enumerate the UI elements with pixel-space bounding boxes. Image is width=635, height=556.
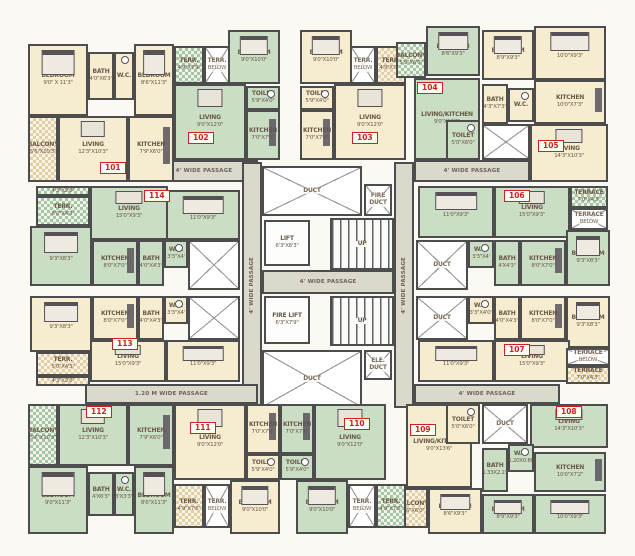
unit-109-toilet-label: TOILET: [452, 417, 474, 424]
unit-101-bedroom1-dims: 9'0" X 11'3": [43, 80, 72, 86]
unit-111-toilet-dims: 5'9"X4'0": [251, 467, 274, 473]
unit-106-living-label: LIVING: [521, 205, 543, 212]
unit-114-terrace-dims: 8'0"X4'3": [51, 211, 74, 217]
unit-110-terrace-label: TERR.: [382, 499, 401, 506]
unit-106-bedroom-a-label: BEDROOM: [439, 205, 472, 212]
unit-114-bedroom-a-dims: 11'0"X9'3": [190, 215, 216, 221]
unit-112-bedroom2-label: BEDROOM: [137, 493, 170, 500]
unit-101-bath-dims: 4'0"X6'3": [89, 76, 112, 82]
unit-109-living-kitchen-dims: 9'0"X13'6": [426, 446, 452, 452]
unit-110-kitchen: KITCHEN7'0"X7'9": [280, 404, 314, 454]
unit-107-terrace: TERRACE7'0"X4'3": [566, 366, 610, 384]
unit-106-duct-label: DUCT: [432, 262, 452, 269]
unit-103-bedroom-label: BEDROOM: [309, 50, 342, 57]
unit-107-duct: DUCT: [416, 296, 468, 340]
passage-mid-label: 4' WIDE PASSAGE: [300, 279, 357, 285]
unit-112-bath: BATH4'X6'3": [88, 472, 114, 516]
unit-103-living: LIVING9'0"X12'0": [334, 84, 406, 160]
unit-111-badge: 111: [190, 422, 216, 434]
unit-110-toilet-label: TOILET: [286, 460, 308, 467]
fire-duct: FIRE DUCT: [364, 184, 392, 216]
unit-114-wc-dims: 3'3"X4': [167, 254, 185, 260]
passage-top-left-label: 4' WIDE PASSAGE: [176, 168, 233, 174]
unit-113-wc: W.C.3'3"X4': [164, 296, 188, 324]
unit-111-toilet: TOILET5'9"X4'0": [246, 454, 280, 480]
unit-107-badge: 107: [504, 344, 530, 356]
unit-110-living-label: LIVING: [339, 435, 361, 442]
duct-top-label: DUCT: [302, 188, 322, 195]
unit-102-bedroom-label: BEDROOM: [237, 50, 270, 57]
unit-107-terrace-below-label: TERRACE: [572, 350, 603, 357]
unit-112-wc-label: W.C.: [117, 487, 131, 494]
unit-102-kitchen: KITCHEN7'0"X7'9": [246, 110, 280, 160]
unit-111-living-label: LIVING: [199, 435, 221, 442]
unit-110-toilet-dims: 5'9"X4'0": [285, 467, 308, 473]
unit-107-living-dims: 15'0"X9'3": [519, 361, 545, 367]
unit-114-wc-label: W.C.: [169, 247, 183, 254]
unit-106-kitchen-dims: 8'0"X7'0": [531, 263, 554, 269]
unit-113-terrace-strip-dims: 4'3"X2'6": [51, 378, 74, 384]
unit-111-toilet-label: TOILET: [252, 460, 274, 467]
unit-107-bedroom-a-label: BEDROOM: [439, 354, 472, 361]
unit-106-badge: 106: [504, 190, 530, 202]
unit-108-kitchen-dims: 10'0"X7'2": [557, 472, 583, 478]
unit-114-kitchen-dims: 8'0"X7'0": [103, 263, 126, 269]
unit-101-badge: 101: [100, 162, 126, 174]
unit-101-bedroom1-label: BEDROOM: [41, 73, 74, 80]
unit-113-living-label: LIVING: [117, 354, 139, 361]
lift-dims: 6'3"X6'3": [275, 243, 298, 249]
unit-109-bedroom: BEDROOM8'6"X9'3": [428, 488, 482, 534]
fire-duct-label: FIRE DUCT: [366, 193, 390, 207]
unit-102-kitchen-label: KITCHEN: [249, 128, 277, 135]
passage-bottom-right-label: 4' WIDE PASSAGE: [459, 391, 516, 397]
unit-114-terrace-label: TERR.: [54, 204, 73, 211]
unit-108-duct-label: DUCT: [495, 421, 515, 428]
unit-106-kitchen: KITCHEN8'0"X7'0": [520, 240, 566, 286]
duct-top: DUCT: [262, 166, 362, 216]
unit-110-bedroom: BEDROOM9'0"X10'0": [296, 480, 348, 534]
unit-113-badge: 113: [112, 338, 138, 350]
unit-102-bedroom: BEDROOM9'0"X10'0": [228, 30, 280, 84]
unit-112-living-label: LIVING: [82, 428, 104, 435]
unit-102-terrace-below-dims: BELOW: [207, 65, 227, 71]
unit-106-bedroom-b-label: BEDROOM: [571, 251, 604, 258]
unit-114-terrace-strip-dims: 4'3"X2'6": [51, 188, 74, 194]
fire-lift-dims: 6'3"X7'9": [275, 320, 298, 326]
duct-bottom: DUCT: [262, 350, 362, 408]
unit-102-living-label: LIVING: [199, 115, 221, 122]
unit-106-terrace: TERRACE7'0"X4'3": [570, 186, 608, 208]
unit-114-bedroom1: BEDROOM9'3"X8'3": [30, 226, 92, 286]
unit-102-toilet: TOILET5'9"X4'0": [246, 86, 280, 110]
unit-113-terrace-dims: 5'0"X4'3": [51, 364, 74, 370]
unit-108-bedroom1: BEDROOM8'9"X9'3": [482, 494, 534, 534]
unit-112-living-dims: 12'3"X10'3": [78, 435, 108, 441]
unit-112-balcony-label: BALCONY: [28, 428, 59, 435]
unit-102-terrace-label: TERR.: [180, 58, 199, 65]
unit-107-bath: BATH4'0"X4'3": [494, 296, 520, 340]
unit-114-kitchen-label: KITCHEN: [101, 256, 129, 263]
unit-104-bedroom: BEDROOM8'6"X9'3": [426, 26, 480, 76]
unit-114-badge: 114: [144, 190, 170, 202]
unit-105-bedroom2: BEDROOM10'0"X9'3": [534, 26, 606, 80]
unit-103-kitchen: KITCHEN7'0"X7'9": [300, 110, 334, 160]
unit-108-bath-dims: 1.33X2.23: [482, 470, 508, 476]
unit-109-badge: 109: [410, 424, 436, 436]
unit-113-kitchen: KITCHEN8'0"X7'0": [92, 296, 138, 340]
unit-107-bedroom-b-label: BEDROOM: [571, 315, 604, 322]
unit-105-badge: 105: [538, 140, 564, 152]
passage-mid: 4' WIDE PASSAGE: [262, 270, 394, 294]
unit-107-bath-dims: 4'0"X4'3": [495, 318, 518, 324]
unit-107-terrace-below: TERRACEBELOW: [566, 348, 610, 366]
unit-106-bedroom-b: BEDROOM9'3"X8'3": [566, 230, 610, 286]
unit-101-living-label: LIVING: [82, 142, 104, 149]
unit-114-terrace: TERR.8'0"X4'3": [36, 196, 90, 226]
unit-113-bath-label: BATH: [142, 311, 159, 318]
unit-113-wc-dims: 3'3"X4': [167, 310, 185, 316]
unit-101-kitchen: KITCHEN7'9"X6'0": [128, 116, 174, 182]
unit-102-toilet-dims: 5'9"X4'0": [251, 98, 274, 104]
unit-101-balcony: BALCONY5'6"X10'3": [28, 116, 58, 182]
unit-105-bedroom2-dims: 10'0"X9'3": [557, 53, 583, 59]
unit-101-wc: W.C.: [114, 52, 134, 100]
unit-106-bath: BATH4'X4'3": [494, 240, 520, 286]
unit-107-bedroom-b-dims: 9'3"X8'3": [576, 322, 599, 328]
unit-102-toilet-label: TOILET: [252, 91, 274, 98]
unit-110-kitchen-label: KITCHEN: [283, 422, 311, 429]
unit-103-terrace-below-dims: BELOW: [353, 65, 373, 71]
unit-101-kitchen-dims: 7'9"X6'0": [139, 149, 162, 155]
stairs-top-label: UP: [356, 241, 369, 248]
passage-left-vertical: 4' WIDE PASSAGE: [242, 162, 262, 408]
unit-108-bath-label: BATH: [486, 463, 503, 470]
unit-114-duct: [188, 240, 240, 290]
unit-104-balcony: BALCONY5'9"X6'0": [396, 42, 426, 78]
unit-106-wc-dims: 3'3"X4': [472, 254, 490, 260]
unit-107-kitchen-label: KITCHEN: [529, 311, 557, 318]
unit-102-terrace-below: TERR.BELOW: [204, 46, 230, 84]
unit-103-living-label: LIVING: [359, 115, 381, 122]
unit-101-kitchen-label: KITCHEN: [137, 142, 165, 149]
unit-102-kitchen-dims: 7'0"X7'9": [251, 135, 274, 141]
passage-top-right-label: 4' WIDE PASSAGE: [444, 168, 501, 174]
unit-114-bedroom1-label: BEDROOM: [44, 249, 77, 256]
unit-106-wc-label: W.C.: [474, 247, 488, 254]
unit-102-living-dims: 9'0"X12'0": [197, 122, 223, 128]
unit-111-bedroom-dims: 9'0"X10'0": [242, 507, 268, 513]
unit-111-terrace-below-label: TERR.: [207, 499, 228, 506]
unit-103-kitchen-label: KITCHEN: [303, 128, 331, 135]
unit-108-bedroom2: BEDROOM10'0"X9'3": [534, 494, 606, 534]
unit-111-kitchen: KITCHEN7'0"X7'9": [246, 404, 280, 454]
floor-plan: 4' WIDE PASSAGE4' WIDE PASSAGE4' WIDE PA…: [0, 0, 635, 556]
unit-108-bedroom2-label: BEDROOM: [553, 507, 586, 514]
unit-107-wc: W.C.3'3"X4'0": [468, 296, 494, 324]
unit-114-bath: BATH4'0"X4'3": [138, 240, 164, 286]
unit-108-bedroom1-dims: 8'9"X9'3": [496, 514, 519, 520]
unit-111-living-dims: 9'0"X12'0": [197, 442, 223, 448]
unit-108-duct: DUCT: [482, 404, 528, 444]
unit-106-terrace-label: TERRACE: [574, 190, 603, 197]
unit-101-living-dims: 12'3"X10'3": [78, 149, 108, 155]
unit-101-balcony-label: BALCONY: [28, 142, 59, 149]
unit-114-bedroom-a-label: BEDROOM: [186, 208, 219, 215]
unit-107-wc-label: W.C.: [474, 303, 488, 310]
unit-106-bedroom-b-dims: 9'3"X8'3": [576, 258, 599, 264]
unit-106-terrace-below: TERRACEBELOW: [570, 208, 608, 230]
unit-106-terrace-dims: 7'0"X4'3": [577, 197, 600, 203]
unit-111-bedroom: BEDROOM9'0"X10'0": [230, 480, 280, 534]
electrical-duct: ELE. DUCT: [364, 350, 392, 380]
unit-112-bedroom1-label: BEDROOM: [41, 493, 74, 500]
unit-114-wc: W.C.3'3"X4': [164, 240, 188, 268]
unit-114-terrace-strip: 4'3"X2'6": [36, 186, 90, 196]
unit-102-terrace-below-label: TERR.: [207, 58, 228, 65]
unit-105-bedroom1-dims: 8'9"X9'3": [496, 55, 519, 61]
unit-105-duct: [482, 124, 530, 160]
unit-107-bedroom-a: BEDROOM11'0"X9'3": [418, 340, 494, 382]
unit-101-balcony-dims: 5'6"X10'3": [30, 149, 56, 155]
unit-107-bedroom-a-dims: 11'0"X9'3": [443, 361, 469, 367]
unit-105-wc: W.C.: [508, 88, 534, 122]
unit-108-living-label: LIVING: [558, 419, 580, 426]
unit-107-terrace-below-dims: BELOW: [578, 357, 598, 363]
passage-bottom-right: 4' WIDE PASSAGE: [414, 384, 560, 404]
unit-103-kitchen-dims: 7'0"X7'9": [305, 135, 328, 141]
unit-111-living: LIVING9'0"X12'0": [174, 404, 246, 480]
fire-lift: FIRE LIFT6'3"X7'9": [264, 296, 310, 344]
unit-111-bedroom-label: BEDROOM: [238, 500, 271, 507]
unit-101-bath-label: BATH: [92, 69, 109, 76]
unit-112-bath-dims: 4'X6'3": [92, 494, 110, 500]
unit-106-living-dims: 15'0"X9'3": [519, 212, 545, 218]
unit-107-kitchen-dims: 8'0"X7'0": [531, 318, 554, 324]
unit-105-bath-dims: 4'3"X7'3": [483, 104, 506, 110]
unit-113-bath: BATH4'0"X4'3": [138, 296, 164, 340]
unit-105-bedroom1: BEDROOM8'9"X9'3": [482, 30, 534, 80]
unit-108-bedroom1-label: BEDROOM: [491, 507, 524, 514]
unit-112-bedroom1: BEDROOM9'0"X11'3": [28, 466, 88, 534]
unit-113-kitchen-label: KITCHEN: [101, 311, 129, 318]
unit-106-terrace-below-label: TERRACE: [573, 212, 604, 219]
unit-105-bedroom1-label: BEDROOM: [491, 48, 524, 55]
unit-107-kitchen: KITCHEN8'0"X7'0": [520, 296, 566, 340]
unit-109-toilet-dims: 5'0"X6'0": [451, 424, 474, 430]
stairs-bottom: UP: [330, 296, 394, 346]
unit-106-bath-label: BATH: [498, 256, 515, 263]
unit-110-kitchen-dims: 7'0"X7'9": [285, 429, 308, 435]
unit-110-living-dims: 9'0"X12'0": [337, 442, 363, 448]
unit-108-living-dims: 14'3"X10'3": [554, 426, 584, 432]
unit-114-bedroom-a: BEDROOM11'0"X9'3": [166, 190, 240, 240]
unit-103-toilet-label: TOILET: [306, 91, 328, 98]
unit-112-balcony: BALCONY5'6"X10'3": [28, 404, 58, 466]
unit-112-kitchen-label: KITCHEN: [137, 428, 165, 435]
unit-105-living: LIVING14'3"X10'3": [530, 124, 608, 182]
passage-bottom-left-label: 1.20 M WIDE PASSAGE: [135, 391, 208, 397]
unit-109-toilet: TOILET5'0"X6'0": [446, 404, 480, 444]
unit-105-kitchen-label: KITCHEN: [556, 95, 584, 102]
lift-label: LIFT: [280, 236, 293, 243]
unit-107-duct-label: DUCT: [432, 315, 452, 322]
unit-105-bath: BATH4'3"X7'3": [482, 84, 508, 124]
unit-101-bath: BATH4'0"X6'3": [88, 52, 114, 100]
unit-112-bedroom1-dims: 9'0"X11'3": [45, 500, 71, 506]
unit-110-bedroom-dims: 9'0"X10'0": [309, 507, 335, 513]
unit-108-wc: W.C.1.20X0.80: [508, 444, 534, 472]
unit-101-bedroom2-dims: 8'6"X11'3": [141, 80, 167, 86]
unit-114-bath-label: BATH: [142, 256, 159, 263]
unit-113-wc-label: W.C.: [169, 303, 183, 310]
unit-108-bedroom2-dims: 10'0"X9'3": [557, 514, 583, 520]
unit-101-wc-label: W.C.: [117, 73, 131, 80]
unit-101-bedroom2: BEDROOM8'6"X11'3": [134, 44, 174, 116]
unit-101-bedroom2-label: BEDROOM: [137, 73, 170, 80]
unit-114-living-dims: 15'0"X9'3": [116, 213, 142, 219]
unit-106-duct: DUCT: [416, 240, 468, 290]
unit-103-bedroom: BEDROOM9'0"X10'0": [300, 30, 352, 84]
unit-113-duct: [188, 296, 240, 340]
passage-right-vertical: 4' WIDE PASSAGE: [394, 162, 414, 408]
unit-104-balcony-label: BALCONY: [396, 53, 427, 60]
unit-102-living: LIVING9'0"X12'0": [174, 84, 246, 160]
unit-105-living-dims: 14'3"X10'3": [554, 153, 584, 159]
unit-111-terrace-below: TERR.BELOW: [204, 484, 230, 528]
unit-112-badge: 112: [86, 406, 112, 418]
unit-107-bedroom-b: BEDROOM9'3"X8'3": [566, 296, 610, 348]
unit-103-terrace-below-label: TERR.: [353, 58, 374, 65]
unit-113-bedroom-a-dims: 11'0"X9'3": [190, 361, 216, 367]
unit-104-toilet-label: TOILET: [452, 133, 474, 140]
unit-113-bedroom1: BEDROOM9'3"X8'3": [30, 296, 92, 352]
unit-104-balcony-dims: 5'9"X6'0": [399, 60, 422, 66]
unit-110-living: LIVING9'0"X12'0": [314, 404, 386, 480]
passage-bottom-left: 1.20 M WIDE PASSAGE: [85, 384, 258, 404]
unit-112-wc: W.C.3'X3'3": [114, 472, 134, 516]
unit-113-terrace-label: TERR.: [54, 357, 73, 364]
unit-111-terrace-dims: 4'9"X7'6": [177, 506, 200, 512]
unit-111-terrace-label: TERR.: [180, 499, 199, 506]
unit-105-kitchen-dims: 10'0"X7'3": [557, 102, 583, 108]
unit-104-living-kitchen-label: LIVING/KITCHEN: [421, 112, 473, 119]
unit-103-terrace-below: TERR.BELOW: [350, 46, 376, 84]
unit-113-bath-dims: 4'0"X4'3": [139, 318, 162, 324]
unit-112-balcony-dims: 5'6"X10'3": [30, 435, 56, 441]
unit-103-living-dims: 9'0"X12'0": [357, 122, 383, 128]
electrical-duct-label: ELE. DUCT: [366, 358, 390, 372]
unit-111-terrace: TERR.4'9"X7'6": [174, 484, 204, 528]
unit-114-bedroom1-dims: 9'3"X8'3": [49, 256, 72, 262]
unit-106-bedroom-a: BEDROOM11'0"X9'3": [418, 186, 494, 238]
unit-106-kitchen-label: KITCHEN: [529, 256, 557, 263]
unit-113-kitchen-dims: 8'0"X7'0": [103, 318, 126, 324]
unit-107-bath-label: BATH: [498, 311, 515, 318]
unit-104-toilet-dims: 5'0"X6'0": [451, 140, 474, 146]
unit-105-kitchen: KITCHEN10'0"X7'3": [534, 80, 606, 124]
stairs-top: UP: [330, 218, 394, 270]
unit-104-toilet: TOILET5'0"X6'0": [446, 120, 480, 160]
unit-111-terrace-below-dims: BELOW: [207, 506, 227, 512]
unit-104-badge: 104: [417, 82, 443, 94]
passage-top-right: 4' WIDE PASSAGE: [414, 160, 530, 182]
unit-106-bedroom-a-dims: 11'0"X9'3": [443, 212, 469, 218]
unit-112-bedroom2: BEDROOM8'6"X11'3": [134, 466, 174, 534]
unit-101-bedroom1: BEDROOM9'0" X 11'3": [28, 44, 88, 116]
unit-112-wc-dims: 3'X3'3": [115, 494, 133, 500]
unit-110-terrace-below: TERR.BELOW: [348, 484, 376, 528]
unit-103-badge: 103: [352, 132, 378, 144]
unit-110-bedroom-label: BEDROOM: [305, 500, 338, 507]
unit-106-wc: W.C.3'3"X4': [468, 240, 494, 268]
unit-103-toilet: TOILET5'9"X4'0": [300, 86, 334, 110]
unit-108-wc-dims: 1.20X0.80: [508, 458, 534, 464]
unit-113-living-dims: 15'0"X9'3": [115, 361, 141, 367]
unit-113-bedroom1-label: BEDROOM: [44, 317, 77, 324]
unit-109-bedroom-label: BEDROOM: [438, 504, 471, 511]
unit-108-kitchen: KITCHEN10'0"X7'2": [534, 452, 606, 492]
unit-107-terrace-dims: 7'0"X4'3": [576, 375, 599, 381]
unit-111-kitchen-label: KITCHEN: [249, 422, 277, 429]
unit-114-bath-dims: 4'0"X4'3": [139, 263, 162, 269]
unit-112-kitchen: KITCHEN7'9"X6'0": [128, 404, 174, 466]
unit-106-bath-dims: 4'X4'3": [498, 263, 516, 269]
unit-103-bedroom-dims: 9'0"X10'0": [313, 57, 339, 63]
unit-102-bedroom-dims: 9'0"X10'0": [241, 57, 267, 63]
unit-112-bedroom2-dims: 8'6"X11'3": [141, 500, 167, 506]
unit-108-kitchen-label: KITCHEN: [556, 465, 584, 472]
unit-104-bedroom-dims: 8'6"X9'3": [441, 51, 464, 57]
unit-110-terrace-dims: 4'9"X7'6": [379, 506, 402, 512]
unit-102-badge: 102: [188, 132, 214, 144]
unit-104-bedroom-label: BEDROOM: [436, 44, 469, 51]
unit-113-bedroom-a: BEDROOM11'0"X9'3": [166, 340, 240, 382]
passage-right-vertical-label: 4' WIDE PASSAGE: [401, 257, 407, 314]
unit-105-wc-label: W.C.: [514, 102, 528, 109]
duct-bottom-label: DUCT: [302, 376, 322, 383]
passage-left-vertical-label: 4' WIDE PASSAGE: [249, 257, 255, 314]
unit-110-badge: 110: [344, 418, 370, 430]
unit-102-terrace: TERR.4'9"X7'9": [174, 46, 204, 84]
unit-103-toilet-dims: 5'9"X4'0": [305, 98, 328, 104]
fire-lift-label: FIRE LIFT: [272, 313, 302, 320]
unit-105-bedroom2-label: BEDROOM: [553, 46, 586, 53]
unit-107-wc-dims: 3'3"X4'0": [469, 310, 492, 316]
unit-111-kitchen-dims: 7'0"X7'9": [251, 429, 274, 435]
unit-112-kitchen-dims: 7'9"X6'0": [139, 435, 162, 441]
unit-106-terrace-below-dims: BELOW: [579, 219, 599, 225]
unit-112-bath-label: BATH: [92, 487, 109, 494]
unit-107-terrace-label: TERRACE: [573, 368, 602, 375]
unit-110-toilet: TOILET5'9"X4'0": [280, 454, 314, 480]
lift: LIFT6'3"X6'3": [264, 220, 310, 266]
unit-113-terrace-strip: 4'3"X2'6": [36, 376, 90, 386]
unit-114-living-label: LIVING: [118, 206, 140, 213]
unit-108-bath: BATH1.33X2.23: [482, 448, 508, 492]
unit-108-badge: 108: [556, 406, 582, 418]
unit-113-bedroom1-dims: 9'3"X8'3": [49, 324, 72, 330]
unit-113-bedroom-a-label: BEDROOM: [186, 354, 219, 361]
unit-105-bath-label: BATH: [486, 97, 503, 104]
unit-114-kitchen: KITCHEN8'0"X7'0": [92, 240, 138, 286]
unit-113-terrace: TERR.5'0"X4'3": [36, 352, 90, 376]
unit-102-terrace-dims: 4'9"X7'9": [177, 65, 200, 71]
stairs-bottom-label: UP: [356, 318, 369, 325]
unit-110-terrace: TERR.4'9"X7'6": [376, 484, 406, 528]
unit-110-terrace-below-label: TERR.: [352, 499, 373, 506]
unit-109-bedroom-dims: 8'6"X9'3": [443, 511, 466, 517]
